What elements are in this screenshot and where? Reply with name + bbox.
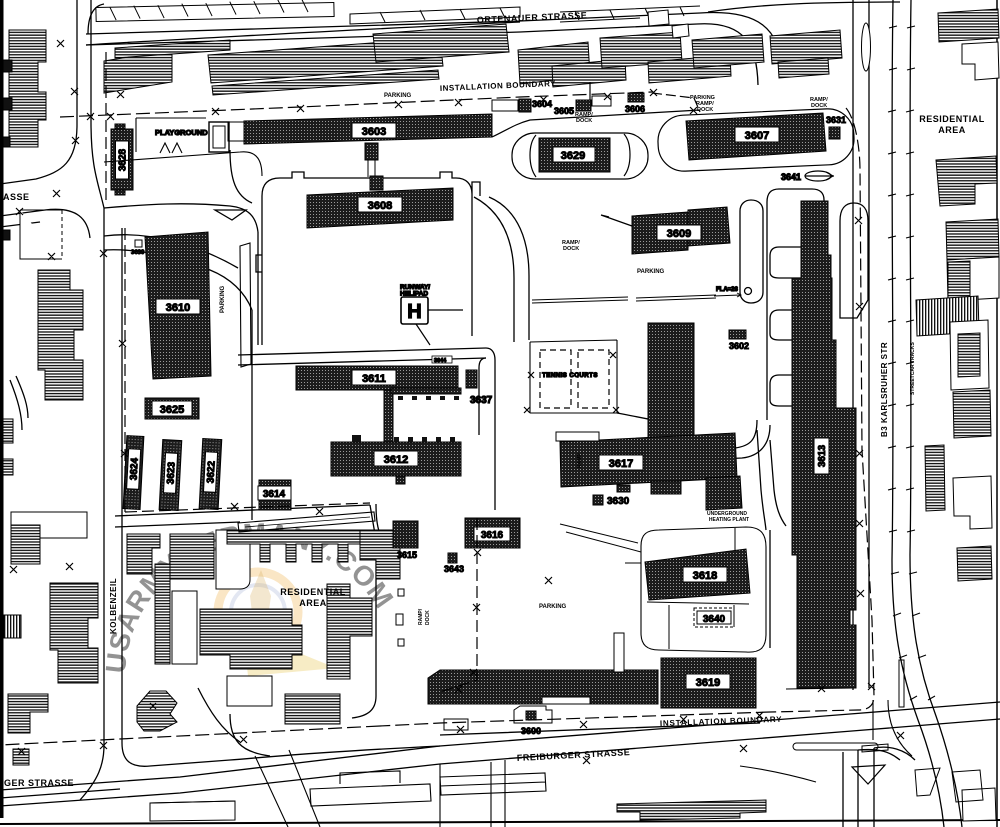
svg-text:3610: 3610 xyxy=(166,302,190,314)
svg-text:3637: 3637 xyxy=(470,395,493,406)
svg-text:B3 KARLSRUHER STR: B3 KARLSRUHER STR xyxy=(880,342,889,437)
svg-text:3622: 3622 xyxy=(205,460,217,483)
svg-text:H: H xyxy=(407,301,421,323)
svg-text:3641: 3641 xyxy=(781,172,801,182)
svg-text:DOCK: DOCK xyxy=(811,103,827,109)
svg-text:3606: 3606 xyxy=(625,104,645,114)
svg-text:3629: 3629 xyxy=(561,150,585,162)
svg-text:3639: 3639 xyxy=(131,250,145,256)
svg-text:DOCK: DOCK xyxy=(697,107,713,113)
svg-text:3603: 3603 xyxy=(362,126,386,138)
svg-text:RESIDENTIAL: RESIDENTIAL xyxy=(919,114,985,124)
svg-text:3602: 3602 xyxy=(729,341,749,351)
svg-text:3600: 3600 xyxy=(521,726,541,736)
svg-text:HEATING PLANT: HEATING PLANT xyxy=(709,517,749,523)
svg-text:3617: 3617 xyxy=(609,458,633,470)
svg-text:FLA=26: FLA=26 xyxy=(716,287,739,293)
svg-text:3630: 3630 xyxy=(607,496,630,507)
svg-text:3611: 3611 xyxy=(362,373,386,385)
svg-text:3644: 3644 xyxy=(434,358,447,364)
svg-text:3609: 3609 xyxy=(667,228,691,240)
svg-text:3607: 3607 xyxy=(745,130,769,142)
svg-text:3624: 3624 xyxy=(129,457,141,480)
svg-text:AREA: AREA xyxy=(299,598,327,608)
svg-text:3605: 3605 xyxy=(554,106,574,116)
svg-text:3613: 3613 xyxy=(817,444,828,467)
svg-text:PARKING: PARKING xyxy=(539,604,567,610)
svg-text:3640: 3640 xyxy=(703,614,726,625)
svg-text:3616: 3616 xyxy=(481,530,504,541)
svg-text:3618: 3618 xyxy=(693,570,717,582)
svg-text:DOCK: DOCK xyxy=(425,610,431,625)
svg-text:DOCK: DOCK xyxy=(563,246,579,252)
svg-text:3643: 3643 xyxy=(444,564,464,574)
svg-text:3614: 3614 xyxy=(263,489,286,500)
svg-text:ASSE: ASSE xyxy=(3,192,30,202)
svg-text:HELIPAD: HELIPAD xyxy=(400,291,428,298)
svg-text:3623: 3623 xyxy=(165,461,177,484)
svg-text:GER STRASSE: GER STRASSE xyxy=(4,778,74,788)
svg-text:3631: 3631 xyxy=(826,115,846,125)
svg-text:RAMP/: RAMP/ xyxy=(418,608,424,625)
svg-text:3625: 3625 xyxy=(160,404,184,416)
svg-text:PARKING: PARKING xyxy=(384,93,412,99)
svg-text:3615: 3615 xyxy=(397,550,417,560)
svg-text:DOCK: DOCK xyxy=(576,118,592,124)
svg-text:KOLBENZEIL: KOLBENZEIL xyxy=(109,578,118,634)
svg-text:RAMP: RAMP xyxy=(577,453,583,468)
svg-text:PLAYGROUND: PLAYGROUND xyxy=(155,128,208,137)
svg-text:PARKING: PARKING xyxy=(220,285,226,313)
svg-text:RESIDENTIAL: RESIDENTIAL xyxy=(280,587,346,597)
svg-text:3619: 3619 xyxy=(696,677,720,689)
svg-text:STREETCAR TRACKS: STREETCAR TRACKS xyxy=(910,342,916,395)
svg-text:AREA: AREA xyxy=(938,125,966,135)
svg-text:3608: 3608 xyxy=(368,200,392,212)
svg-text:TENNIS COURTS: TENNIS COURTS xyxy=(542,372,598,379)
svg-text:3612: 3612 xyxy=(384,454,408,466)
svg-text:PARKING: PARKING xyxy=(637,269,665,275)
